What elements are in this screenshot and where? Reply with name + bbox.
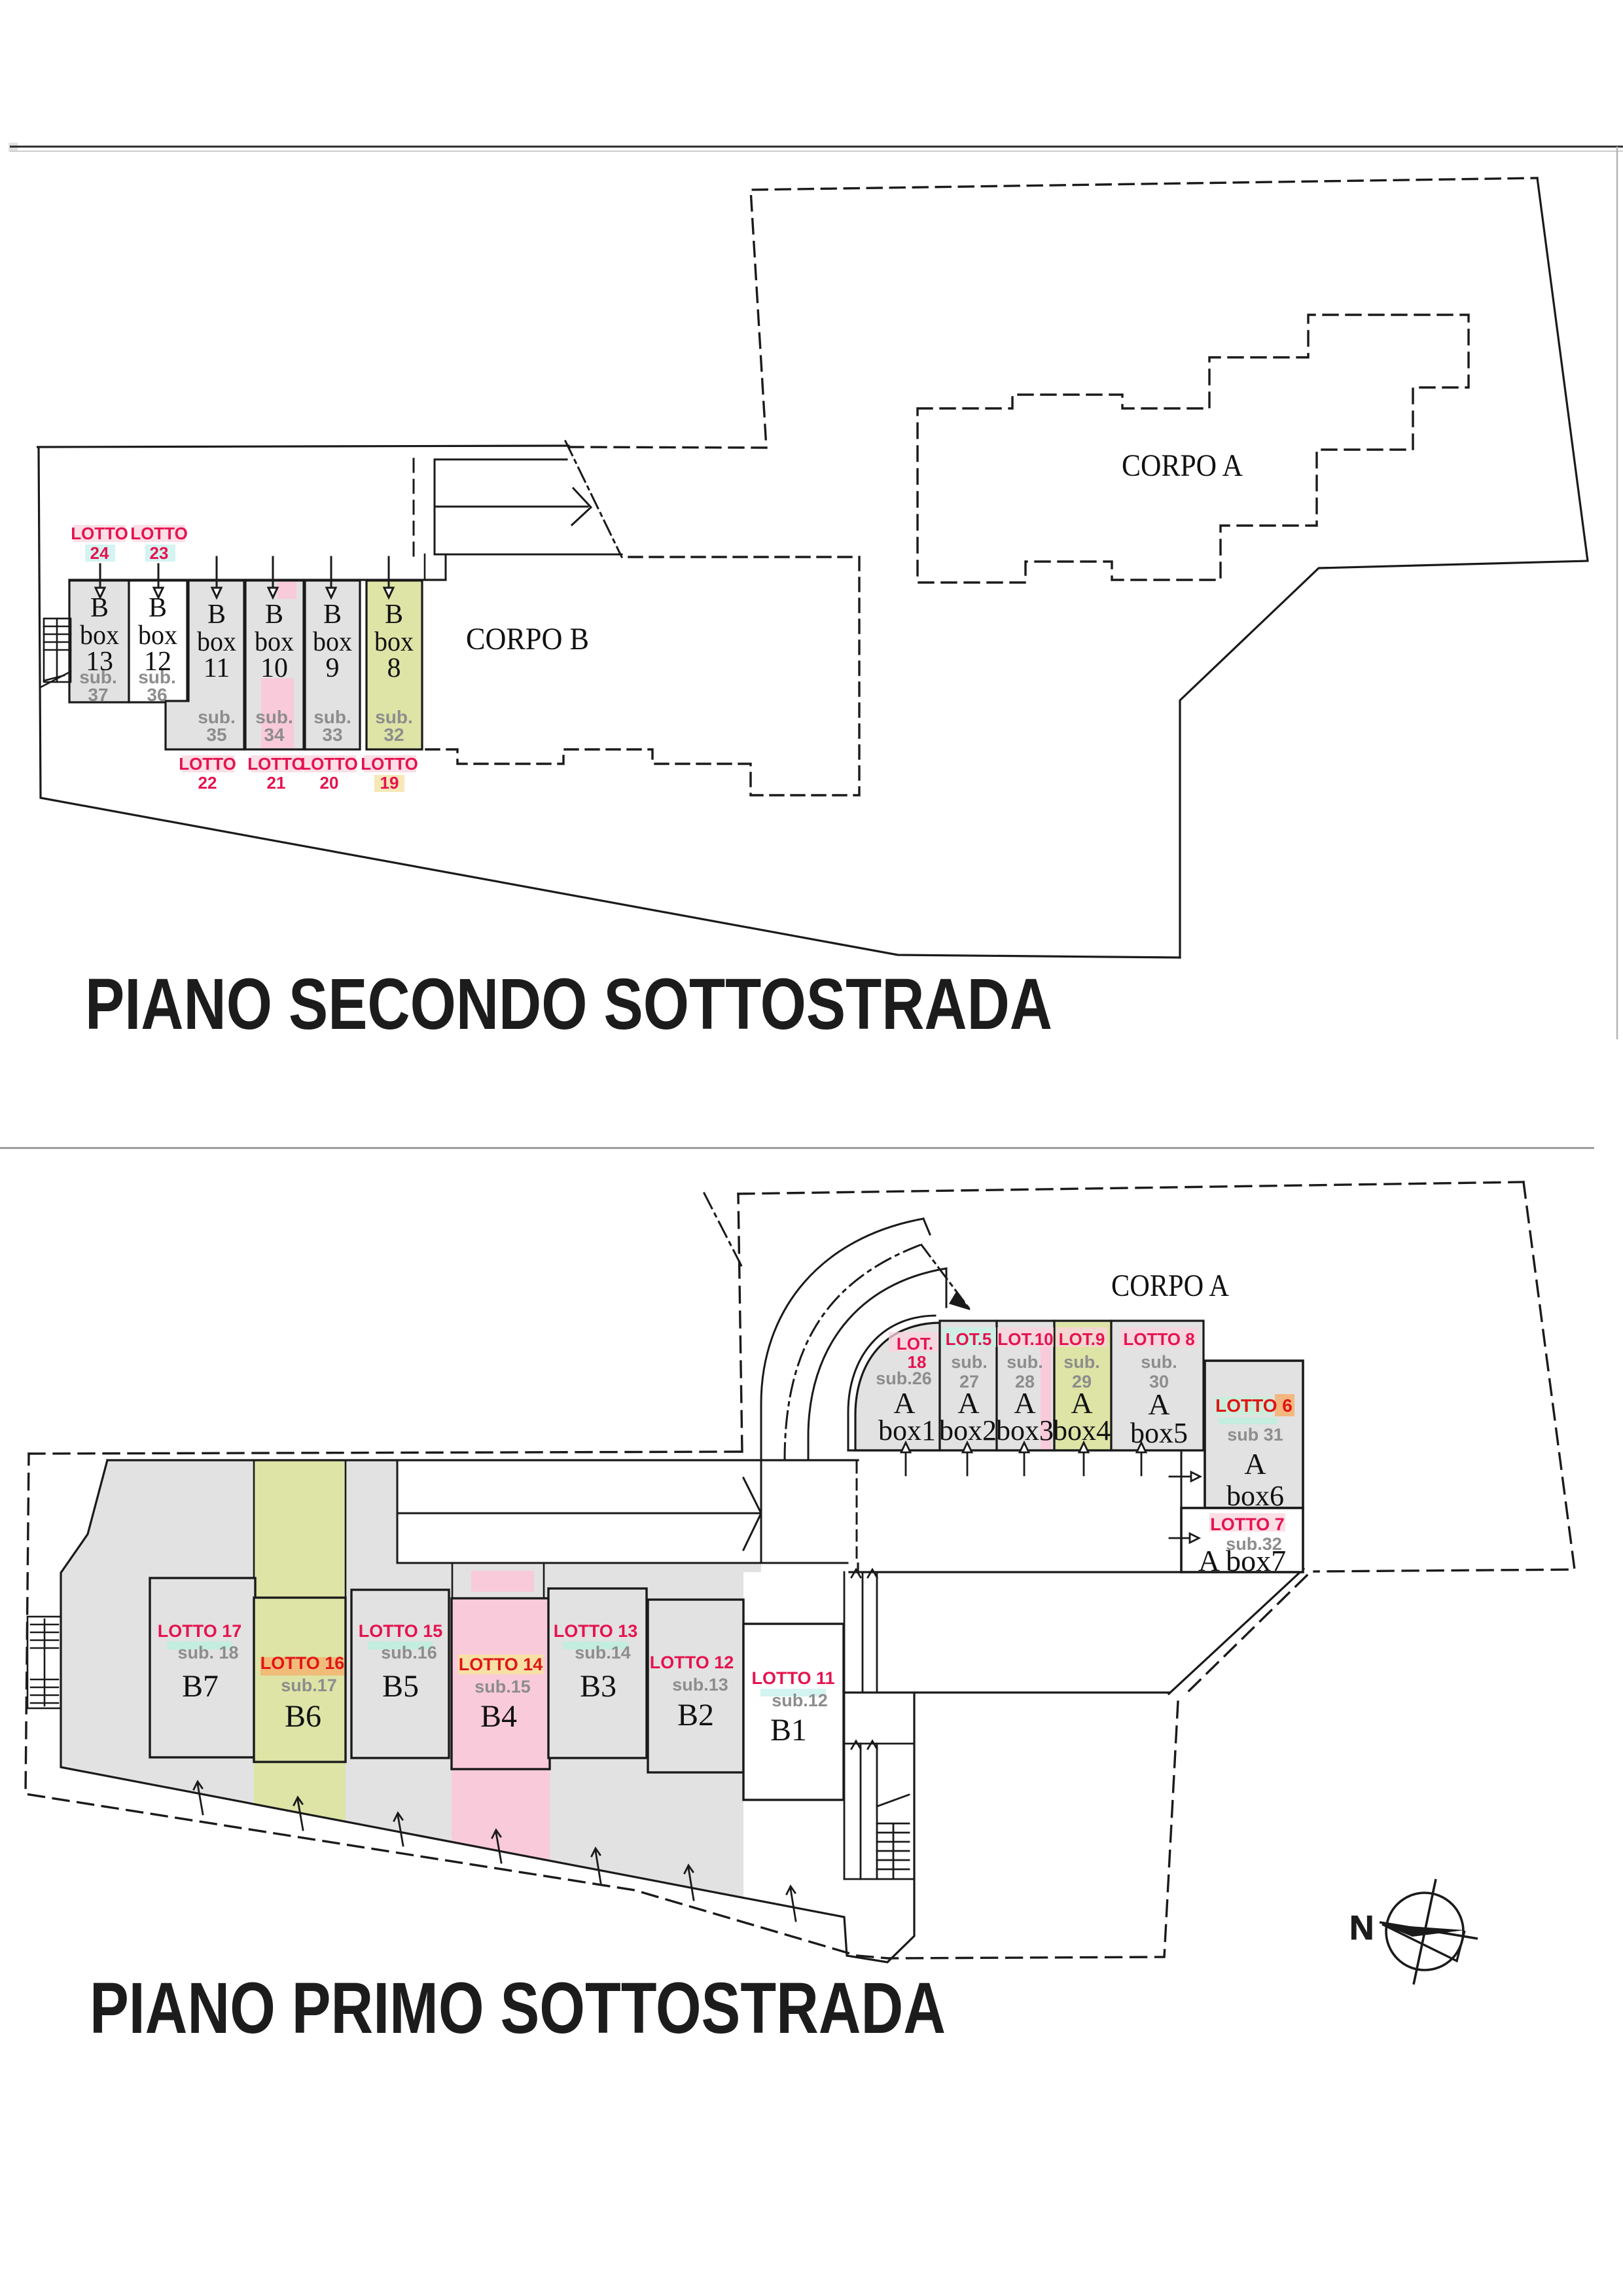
svg-text:sub.: sub. [1063, 1352, 1100, 1372]
svg-text:20: 20 [320, 773, 339, 793]
svg-text:LOT.: LOT. [897, 1334, 933, 1354]
svg-text:PIANO PRIMO SOTTOSTRADA: PIANO PRIMO SOTTOSTRADA [90, 1968, 946, 2049]
svg-text:33: 33 [322, 725, 342, 745]
svg-text:36: 36 [147, 685, 167, 705]
svg-text:B: B [207, 600, 226, 630]
svg-text:sub. 18: sub. 18 [177, 1643, 238, 1662]
svg-text:sub.16: sub.16 [381, 1643, 437, 1662]
svg-text:35: 35 [206, 725, 226, 745]
svg-text:LOTTO 15: LOTTO 15 [359, 1621, 443, 1641]
svg-text:LOTTO 8: LOTTO 8 [1123, 1329, 1194, 1349]
svg-text:LOTTO 17: LOTTO 17 [158, 1621, 242, 1641]
svg-text:LOT.9: LOT.9 [1059, 1329, 1105, 1349]
svg-text:LOTTO 12: LOTTO 12 [650, 1653, 734, 1672]
svg-text:LOT.10: LOT.10 [997, 1329, 1053, 1349]
svg-text:sub.: sub. [951, 1352, 988, 1372]
svg-text:21: 21 [267, 773, 286, 793]
svg-text:22: 22 [198, 773, 217, 793]
svg-text:19: 19 [380, 773, 399, 793]
svg-text:24: 24 [90, 543, 109, 563]
svg-text:10: 10 [260, 653, 288, 683]
svg-text:box2: box2 [939, 1414, 997, 1446]
svg-text:LOTTO 16: LOTTO 16 [260, 1653, 345, 1673]
svg-text:box4: box4 [1053, 1414, 1111, 1446]
svg-text:CORPO B: CORPO B [466, 622, 589, 656]
svg-text:B1: B1 [770, 1713, 807, 1748]
svg-text:B5: B5 [382, 1669, 419, 1704]
svg-text:B: B [265, 600, 283, 630]
svg-text:11: 11 [204, 653, 230, 683]
svg-text:sub.14: sub.14 [575, 1643, 631, 1662]
svg-text:box3: box3 [996, 1414, 1054, 1446]
svg-text:9: 9 [326, 653, 340, 683]
svg-text:sub.13: sub.13 [672, 1675, 728, 1695]
svg-text:A: A [1148, 1388, 1169, 1421]
svg-text:LOTTO: LOTTO [71, 524, 128, 543]
svg-text:LOTTO 11: LOTTO 11 [751, 1668, 834, 1688]
svg-text:PIANO SECONDO SOTTOSTRADA: PIANO SECONDO SOTTOSTRADA [85, 964, 1052, 1045]
svg-text:sub.: sub. [1141, 1352, 1177, 1372]
svg-text:B: B [323, 600, 342, 630]
svg-text:LOTTO: LOTTO [361, 754, 418, 774]
svg-text:LOTTO 6: LOTTO 6 [1215, 1395, 1293, 1416]
svg-text:37: 37 [88, 685, 108, 705]
svg-text:LOTTO: LOTTO [247, 754, 305, 774]
svg-text:box1: box1 [878, 1414, 936, 1446]
svg-text:box5: box5 [1130, 1417, 1188, 1449]
svg-text:B3: B3 [580, 1669, 616, 1704]
svg-text:LOTTO: LOTTO [300, 754, 358, 774]
svg-text:sub.: sub. [1007, 1352, 1043, 1372]
svg-text:LOTTO 14: LOTTO 14 [459, 1655, 543, 1674]
svg-text:LOTTO 7: LOTTO 7 [1210, 1515, 1285, 1534]
svg-text:sub.17: sub.17 [281, 1676, 337, 1695]
svg-text:sub.26: sub.26 [876, 1369, 932, 1388]
svg-text:B2: B2 [677, 1698, 714, 1732]
svg-text:CORPO A: CORPO A [1122, 448, 1243, 483]
svg-text:LOT.5: LOT.5 [946, 1329, 992, 1349]
svg-text:A: A [1244, 1447, 1266, 1480]
svg-text:LOTTO 13: LOTTO 13 [554, 1621, 638, 1641]
svg-text:B7: B7 [182, 1669, 219, 1704]
svg-text:sub.12: sub.12 [772, 1691, 828, 1710]
svg-text:CORPO A: CORPO A [1111, 1268, 1229, 1303]
svg-text:sub.15: sub.15 [474, 1677, 531, 1696]
svg-text:box6: box6 [1226, 1480, 1284, 1512]
svg-text:B: B [385, 600, 403, 630]
svg-text:A box7: A box7 [1198, 1544, 1286, 1577]
svg-text:B4: B4 [480, 1699, 517, 1734]
svg-text:23: 23 [150, 543, 169, 563]
svg-text:sub 31: sub 31 [1227, 1425, 1283, 1444]
svg-text:N: N [1349, 1909, 1374, 1947]
svg-text:LOTTO: LOTTO [179, 754, 236, 774]
svg-text:32: 32 [383, 725, 404, 745]
svg-text:B6: B6 [285, 1699, 321, 1734]
svg-text:LOTTO: LOTTO [130, 524, 188, 543]
svg-text:8: 8 [387, 653, 401, 683]
svg-text:34: 34 [264, 725, 285, 745]
